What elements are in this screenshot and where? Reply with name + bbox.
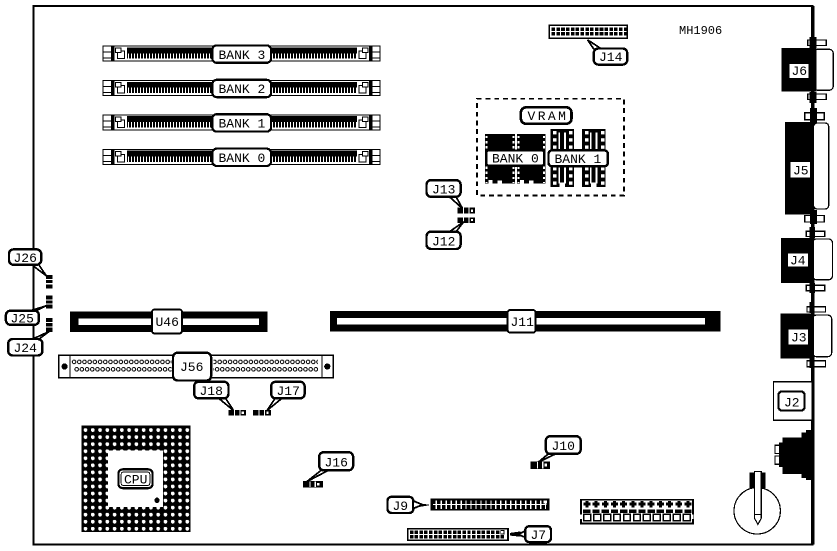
svg-text:J17: J17 — [277, 384, 300, 399]
svg-text:BANK 1: BANK 1 — [219, 117, 266, 132]
svg-text:J3: J3 — [791, 330, 807, 345]
svg-text:J12: J12 — [432, 234, 455, 249]
svg-text:J26: J26 — [14, 251, 37, 266]
svg-text:J4: J4 — [790, 254, 806, 269]
svg-text:J24: J24 — [14, 341, 38, 356]
svg-text:BANK 0: BANK 0 — [219, 151, 266, 166]
svg-text:BANK 2: BANK 2 — [219, 82, 266, 97]
svg-text:BANK 3: BANK 3 — [219, 48, 266, 63]
svg-text:J14: J14 — [599, 50, 623, 65]
svg-text:J18: J18 — [200, 384, 223, 399]
svg-text:J7: J7 — [531, 528, 547, 543]
svg-text:J6: J6 — [792, 64, 808, 79]
svg-text:J5: J5 — [793, 163, 809, 178]
svg-text:BANK 1: BANK 1 — [555, 152, 602, 167]
svg-text:J10: J10 — [552, 439, 575, 454]
svg-text:J16: J16 — [325, 455, 348, 470]
svg-text:CPU: CPU — [124, 473, 147, 488]
svg-text:U46: U46 — [156, 315, 179, 330]
svg-text:J11: J11 — [511, 315, 535, 330]
svg-text:J9: J9 — [393, 499, 409, 514]
svg-text:VRAM: VRAM — [528, 109, 569, 124]
svg-text:BANK 0: BANK 0 — [492, 152, 539, 167]
svg-text:J13: J13 — [432, 182, 455, 197]
svg-text:J2: J2 — [784, 395, 800, 410]
svg-text:J25: J25 — [11, 311, 34, 326]
svg-text:J56: J56 — [180, 360, 203, 375]
svg-text:MH1906: MH1906 — [679, 24, 722, 38]
